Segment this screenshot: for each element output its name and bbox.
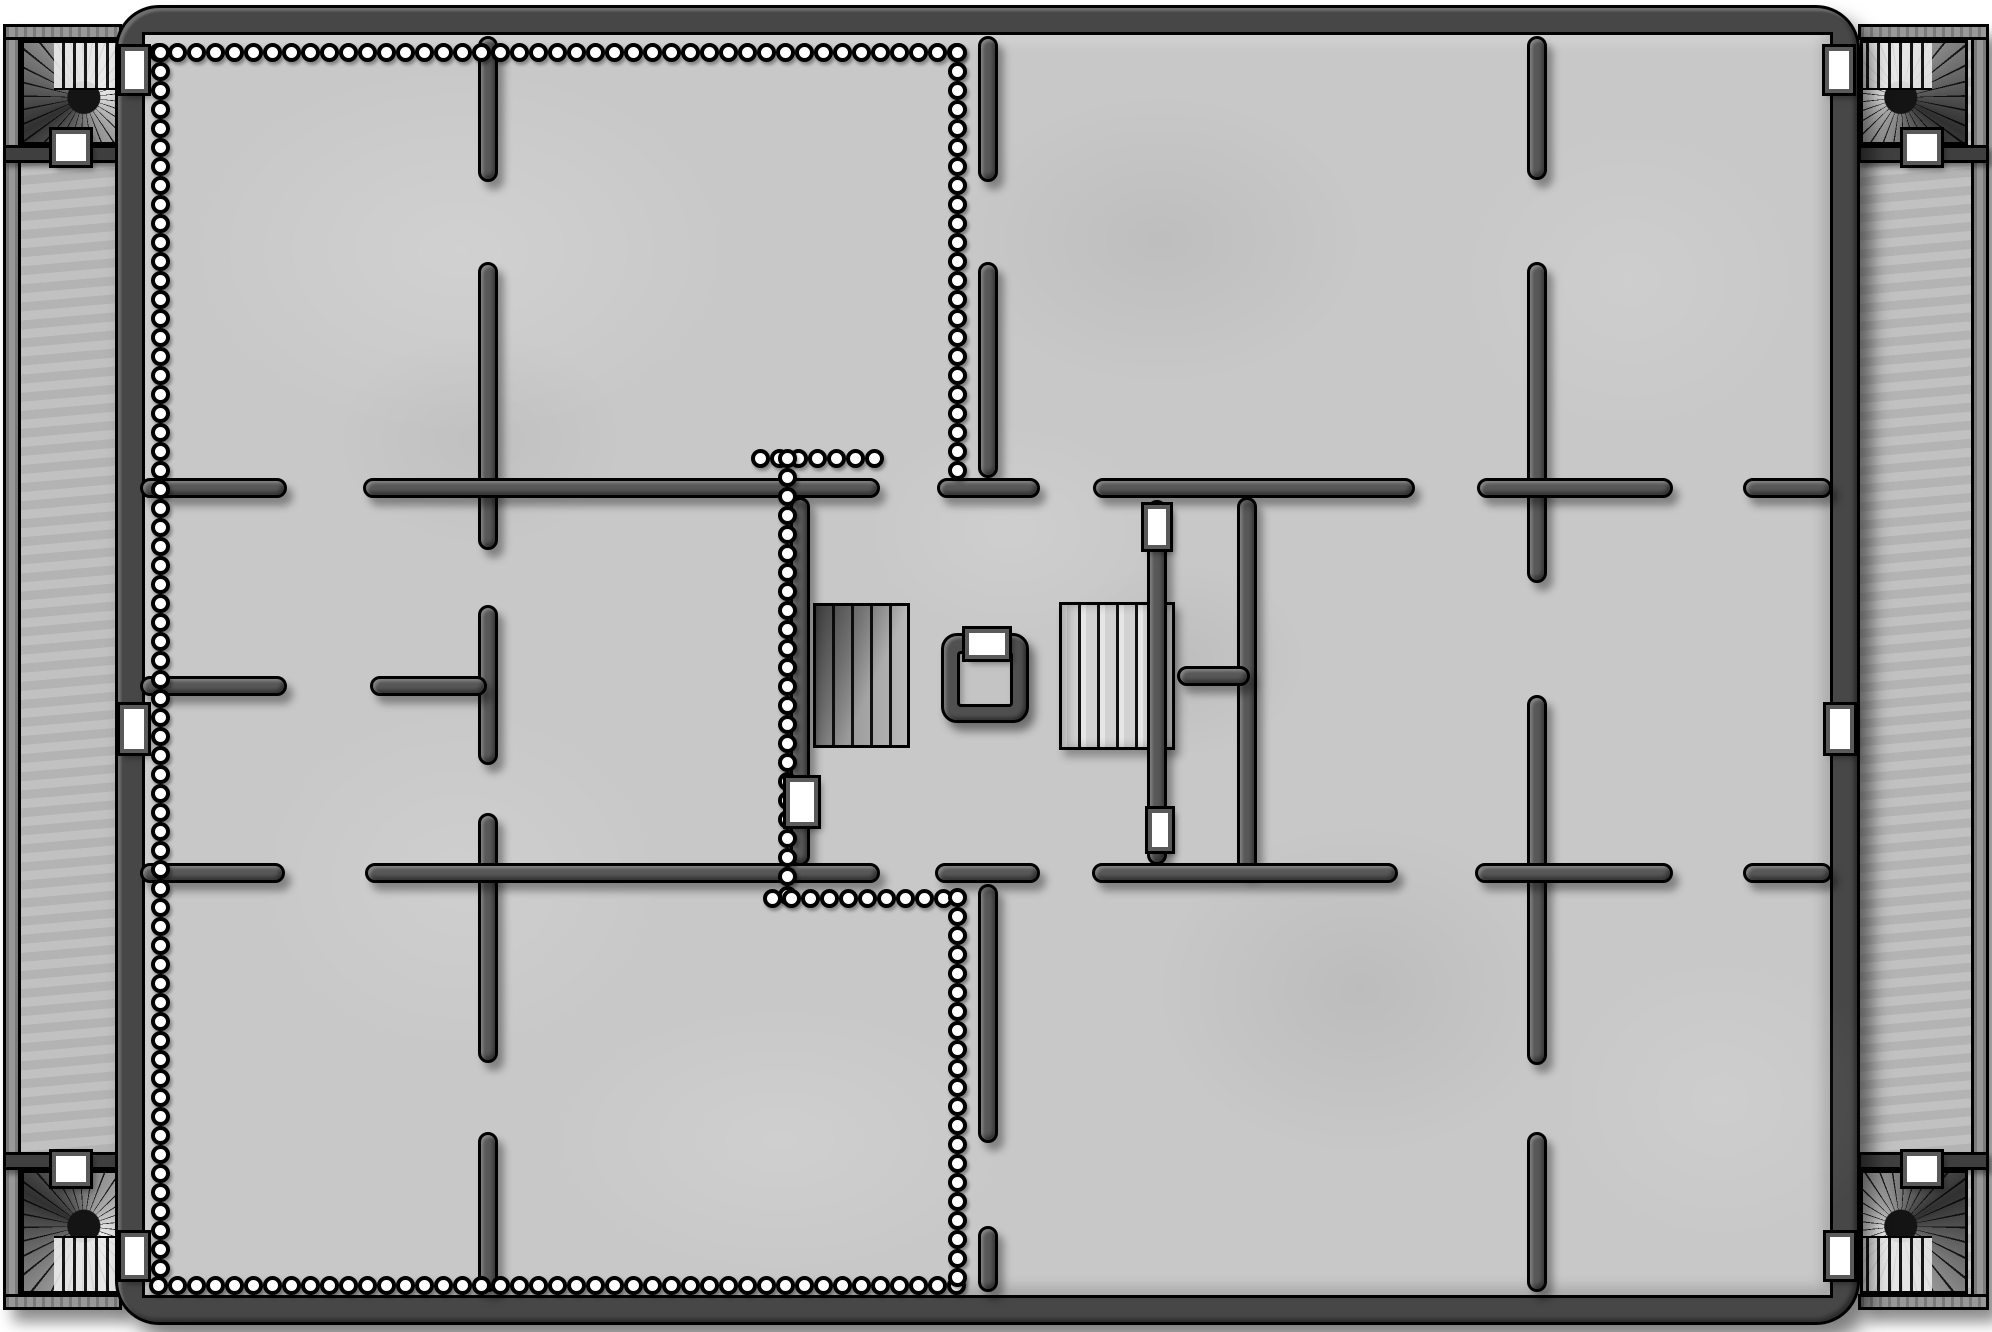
pillar-dot bbox=[151, 1031, 170, 1050]
door-right-wall bbox=[1826, 705, 1854, 753]
pillar-dot bbox=[795, 1276, 814, 1295]
pillar-dot bbox=[814, 43, 833, 62]
pillar-dot bbox=[187, 1276, 206, 1295]
pillar-dot bbox=[151, 157, 170, 176]
pillar-dot bbox=[948, 271, 967, 290]
pillar-dot bbox=[778, 753, 797, 772]
pillar-dot bbox=[948, 1249, 967, 1268]
pillar-dot bbox=[151, 81, 170, 100]
pillar-dot bbox=[778, 525, 797, 544]
pillar-dot bbox=[782, 889, 801, 908]
pillar-dot bbox=[151, 670, 170, 689]
pillar-dot bbox=[377, 1276, 396, 1295]
pillar-dot bbox=[948, 62, 967, 81]
wall-segment-vertical bbox=[1527, 262, 1547, 583]
pillar-dot bbox=[151, 936, 170, 955]
pillar-dot bbox=[151, 499, 170, 518]
right-wing-corridor bbox=[1858, 24, 1989, 1310]
pillar-dot bbox=[719, 43, 738, 62]
pillar-dot bbox=[151, 1164, 170, 1183]
pillar-dot bbox=[948, 1097, 967, 1116]
pillar-dot bbox=[151, 727, 170, 746]
pillar-dot bbox=[151, 822, 170, 841]
pillar-dot bbox=[948, 1173, 967, 1192]
right-wing-top-wall bbox=[1858, 24, 1989, 40]
pillar-dot bbox=[948, 347, 967, 366]
right-wing-outer-wall bbox=[1971, 24, 1989, 1310]
wall-segment-horizontal bbox=[935, 863, 1040, 883]
pillar-dot bbox=[896, 889, 915, 908]
wall-segment-horizontal bbox=[1093, 478, 1415, 498]
pillar-dot bbox=[151, 575, 170, 594]
pillar-dot bbox=[778, 677, 797, 696]
pillar-dot bbox=[778, 696, 797, 715]
spiral-steps bbox=[54, 43, 119, 90]
pillar-dot bbox=[877, 889, 896, 908]
pillar-dot bbox=[909, 43, 928, 62]
pillar-dot bbox=[151, 1012, 170, 1031]
door-bottom-left-stair-east bbox=[121, 1233, 148, 1279]
pillar-dot bbox=[151, 461, 170, 480]
pillar-dot bbox=[948, 1230, 967, 1249]
door-left-wall bbox=[120, 705, 148, 753]
pillar-dot bbox=[377, 43, 396, 62]
pillar-dot bbox=[168, 43, 187, 62]
pillar-dot bbox=[151, 993, 170, 1012]
pillar-dot bbox=[586, 43, 605, 62]
pillar-dot bbox=[801, 889, 820, 908]
pillar-dot bbox=[151, 879, 170, 898]
pillar-dot bbox=[778, 506, 797, 525]
pillar-dot bbox=[434, 1276, 453, 1295]
pillar-dot bbox=[858, 889, 877, 908]
wall-segment-horizontal bbox=[1477, 478, 1673, 498]
pillar-dot bbox=[833, 1276, 852, 1295]
pillar-dot bbox=[948, 157, 967, 176]
pillar-dot bbox=[948, 1040, 967, 1059]
pillar-dot bbox=[151, 917, 170, 936]
pillar-dot bbox=[151, 765, 170, 784]
left-wing-bottom-wall bbox=[3, 1294, 122, 1310]
pillar-dot bbox=[151, 119, 170, 138]
door-colonnade bbox=[786, 778, 818, 826]
wall-segment-vertical bbox=[978, 884, 998, 1143]
pillar-dot bbox=[948, 1211, 967, 1230]
pillar-dot bbox=[778, 848, 797, 867]
pillar-dot bbox=[643, 1276, 662, 1295]
pillar-dot bbox=[778, 715, 797, 734]
pillar-dot bbox=[681, 1276, 700, 1295]
pillar-dot bbox=[151, 404, 170, 423]
pillar-dot bbox=[151, 309, 170, 328]
pillar-dot bbox=[890, 1276, 909, 1295]
pillar-dot bbox=[778, 734, 797, 753]
pillar-dot bbox=[320, 1276, 339, 1295]
pillar-dot bbox=[662, 1276, 681, 1295]
pillar-dot bbox=[339, 1276, 358, 1295]
pillar-dot bbox=[948, 1135, 967, 1154]
pillar-dot bbox=[778, 487, 797, 506]
pillar-dot bbox=[948, 1002, 967, 1021]
wall-segment-horizontal bbox=[1475, 863, 1673, 883]
pillar-dot bbox=[151, 1126, 170, 1145]
wall-segment-horizontal bbox=[1743, 863, 1832, 883]
pillar-dot bbox=[358, 1276, 377, 1295]
pillar-dot bbox=[827, 449, 846, 468]
pillar-dot bbox=[301, 1276, 320, 1295]
pillar-dot bbox=[151, 594, 170, 613]
pillar-dot bbox=[151, 784, 170, 803]
pillar-dot bbox=[151, 233, 170, 252]
pillar-dot bbox=[491, 1276, 510, 1295]
pillar-dot bbox=[778, 468, 797, 487]
pillar-dot bbox=[434, 43, 453, 62]
pillar-dot bbox=[757, 1276, 776, 1295]
pillar-dot bbox=[948, 214, 967, 233]
pillar-dot bbox=[948, 1116, 967, 1135]
door-below-right-stairs bbox=[1148, 809, 1172, 851]
pillar-dot bbox=[948, 290, 967, 309]
spiral-staircase-bottom-right bbox=[1860, 1170, 1968, 1294]
spiral-steps bbox=[54, 1236, 119, 1291]
pillar-dot bbox=[396, 1276, 415, 1295]
pillar-dot bbox=[151, 746, 170, 765]
pillar-dot bbox=[948, 1192, 967, 1211]
pillar-dot bbox=[948, 328, 967, 347]
pillar-dot bbox=[453, 43, 472, 62]
pillar-dot bbox=[151, 138, 170, 157]
pillar-dot bbox=[948, 404, 967, 423]
pillar-dot bbox=[151, 974, 170, 993]
pillar-dot bbox=[151, 366, 170, 385]
pillar-dot bbox=[948, 119, 967, 138]
pillar-dot bbox=[915, 889, 934, 908]
pillar-dot bbox=[871, 43, 890, 62]
pillar-dot bbox=[846, 449, 865, 468]
pillar-dot bbox=[948, 1021, 967, 1040]
pillar-dot bbox=[415, 1276, 434, 1295]
pillar-dot bbox=[151, 195, 170, 214]
wall-segment-vertical bbox=[978, 262, 998, 478]
pillar-dot bbox=[757, 43, 776, 62]
pillar-dot bbox=[301, 43, 320, 62]
pillar-dot bbox=[567, 1276, 586, 1295]
wall-segment-horizontal bbox=[370, 676, 487, 696]
pillar-dot bbox=[415, 43, 434, 62]
pillar-dot bbox=[948, 983, 967, 1002]
pillar-dot bbox=[151, 385, 170, 404]
door-top-left-stair-east bbox=[121, 47, 148, 93]
pillar-dot bbox=[151, 1107, 170, 1126]
spiral-steps bbox=[1863, 1236, 1932, 1291]
pillar-dot bbox=[948, 945, 967, 964]
pillar-dot bbox=[605, 43, 624, 62]
pillar-dot bbox=[320, 43, 339, 62]
pillar-dot bbox=[948, 100, 967, 119]
pillar-dot bbox=[948, 138, 967, 157]
central-well-floor bbox=[957, 651, 1013, 707]
pillar-dot bbox=[808, 449, 827, 468]
door-above-right-stairs bbox=[1144, 505, 1170, 549]
pillar-dot bbox=[662, 43, 681, 62]
pillar-dot bbox=[778, 867, 797, 886]
left-wing-outer-wall bbox=[3, 24, 21, 1310]
pillar-dot bbox=[151, 518, 170, 537]
pillar-dot bbox=[839, 889, 858, 908]
pillar-dot bbox=[151, 1069, 170, 1088]
door-well bbox=[965, 629, 1009, 659]
pillar-dot bbox=[339, 43, 358, 62]
pillar-dot bbox=[151, 176, 170, 195]
pillar-dot bbox=[151, 556, 170, 575]
pillar-dot bbox=[151, 708, 170, 727]
pillar-dot bbox=[738, 1276, 757, 1295]
pillar-dot bbox=[282, 43, 301, 62]
pillar-dot bbox=[396, 43, 415, 62]
pillar-dot bbox=[151, 651, 170, 670]
wall-segment-vertical bbox=[978, 1226, 998, 1292]
pillar-dot bbox=[763, 889, 782, 908]
wall-segment-horizontal bbox=[1743, 478, 1832, 498]
pillar-dot bbox=[151, 1183, 170, 1202]
wall-segment-vertical bbox=[478, 813, 498, 1063]
pillar-dot bbox=[548, 1276, 567, 1295]
pillar-dot bbox=[948, 195, 967, 214]
pillar-dot bbox=[948, 1078, 967, 1097]
pillar-dot bbox=[151, 271, 170, 290]
wall-segment-vertical bbox=[478, 262, 498, 550]
pillar-dot bbox=[871, 1276, 890, 1295]
pillar-dot bbox=[778, 620, 797, 639]
pillar-dot bbox=[151, 898, 170, 917]
pillar-dot bbox=[928, 43, 947, 62]
pillar-dot bbox=[263, 1276, 282, 1295]
pillar-dot bbox=[244, 43, 263, 62]
pillar-dot bbox=[225, 1276, 244, 1295]
pillar-dot bbox=[151, 100, 170, 119]
wall-segment-vertical bbox=[978, 36, 998, 182]
pillar-dot bbox=[151, 1202, 170, 1221]
dungeon-battle-map bbox=[0, 0, 1992, 1332]
pillar-dot bbox=[776, 1276, 795, 1295]
door-bottom-right-stair-north bbox=[1903, 1152, 1941, 1186]
pillar-dot bbox=[948, 385, 967, 404]
pillar-dot bbox=[151, 62, 170, 81]
spiral-staircase-bottom-left bbox=[21, 1170, 122, 1294]
wall-segment-horizontal bbox=[1092, 863, 1398, 883]
pillar-dot bbox=[948, 81, 967, 100]
door-top-right-stair-west bbox=[1825, 47, 1853, 93]
pillar-dot bbox=[472, 1276, 491, 1295]
pillar-dot bbox=[149, 1276, 168, 1295]
pillar-dot bbox=[948, 926, 967, 945]
pillar-dot bbox=[151, 860, 170, 879]
pillar-dot bbox=[643, 43, 662, 62]
pillar-dot bbox=[948, 309, 967, 328]
left-wing-top-wall bbox=[3, 24, 122, 40]
pillar-dot bbox=[852, 43, 871, 62]
pillar-dot bbox=[795, 43, 814, 62]
pillar-dot bbox=[852, 1276, 871, 1295]
pillar-dot bbox=[751, 449, 770, 468]
pillar-dot bbox=[151, 43, 170, 62]
pillar-dot bbox=[738, 43, 757, 62]
pillar-dot bbox=[151, 632, 170, 651]
pillar-dot bbox=[778, 829, 797, 848]
pillar-dot bbox=[151, 1221, 170, 1240]
pillar-dot bbox=[510, 43, 529, 62]
pillar-dot bbox=[151, 841, 170, 860]
pillar-dot bbox=[567, 43, 586, 62]
pillar-dot bbox=[948, 176, 967, 195]
wall-segment-horizontal bbox=[363, 478, 880, 498]
wall-segment-horizontal bbox=[1177, 666, 1250, 686]
wall-segment-vertical bbox=[478, 1132, 498, 1292]
right-wing-bottom-wall bbox=[1858, 1294, 1989, 1310]
pillar-dot bbox=[151, 1088, 170, 1107]
pillar-dot bbox=[529, 1276, 548, 1295]
pillar-dot bbox=[453, 1276, 472, 1295]
pillar-dot bbox=[151, 442, 170, 461]
pillar-dot bbox=[151, 252, 170, 271]
pillar-dot bbox=[909, 1276, 928, 1295]
pillar-dot bbox=[510, 1276, 529, 1295]
pillar-dot bbox=[890, 43, 909, 62]
pillar-dot bbox=[187, 43, 206, 62]
pillar-dot bbox=[206, 43, 225, 62]
wall-segment-vertical bbox=[1527, 36, 1547, 180]
pillar-dot bbox=[814, 1276, 833, 1295]
pillar-dot bbox=[151, 537, 170, 556]
pillar-dot bbox=[778, 563, 797, 582]
wall-segment-vertical bbox=[1527, 1132, 1547, 1292]
pillar-dot bbox=[778, 449, 797, 468]
pillar-dot bbox=[865, 449, 884, 468]
door-bottom-left-stair-north bbox=[52, 1152, 90, 1186]
pillar-dot bbox=[151, 955, 170, 974]
pillar-dot bbox=[948, 888, 967, 907]
wall-segment-horizontal bbox=[937, 478, 1040, 498]
pillar-dot bbox=[151, 803, 170, 822]
pillar-dot bbox=[776, 43, 795, 62]
pillar-dot bbox=[833, 43, 852, 62]
pillar-dot bbox=[948, 366, 967, 385]
pillar-dot bbox=[948, 1059, 967, 1078]
pillar-dot bbox=[151, 290, 170, 309]
stairs-central-left bbox=[813, 603, 910, 748]
pillar-dot bbox=[529, 43, 548, 62]
pillar-dot bbox=[168, 1276, 187, 1295]
pillar-dot bbox=[948, 964, 967, 983]
spiral-steps bbox=[1863, 43, 1932, 90]
pillar-dot bbox=[928, 1276, 947, 1295]
pillar-dot bbox=[225, 43, 244, 62]
pillar-dot bbox=[948, 233, 967, 252]
wall-segment-horizontal bbox=[365, 863, 880, 883]
pillar-dot bbox=[151, 1050, 170, 1069]
pillar-dot bbox=[624, 1276, 643, 1295]
pillar-dot bbox=[778, 658, 797, 677]
pillar-dot bbox=[358, 43, 377, 62]
pillar-dot bbox=[151, 423, 170, 442]
pillar-dot bbox=[948, 442, 967, 461]
pillar-dot bbox=[719, 1276, 738, 1295]
door-top-left-stair-south bbox=[52, 130, 90, 165]
pillar-dot bbox=[586, 1276, 605, 1295]
pillar-dot bbox=[700, 43, 719, 62]
pillar-dot bbox=[472, 43, 491, 62]
pillar-dot bbox=[151, 480, 170, 499]
pillar-dot bbox=[263, 43, 282, 62]
pillar-dot bbox=[151, 214, 170, 233]
pillar-dot bbox=[778, 639, 797, 658]
pillar-dot bbox=[948, 252, 967, 271]
pillar-dot bbox=[681, 43, 700, 62]
pillar-dot bbox=[151, 1240, 170, 1259]
pillar-dot bbox=[948, 1268, 967, 1287]
pillar-dot bbox=[151, 689, 170, 708]
pillar-dot bbox=[548, 43, 567, 62]
pillar-dot bbox=[948, 423, 967, 442]
pillar-dot bbox=[948, 461, 967, 480]
door-bottom-right-stair-west bbox=[1826, 1233, 1854, 1279]
door-top-right-stair-south bbox=[1903, 130, 1941, 165]
pillar-dot bbox=[700, 1276, 719, 1295]
pillar-dot bbox=[605, 1276, 624, 1295]
pillar-dot bbox=[151, 328, 170, 347]
pillar-dot bbox=[948, 43, 967, 62]
pillar-dot bbox=[778, 544, 797, 563]
pillar-dot bbox=[948, 1154, 967, 1173]
pillar-dot bbox=[778, 601, 797, 620]
pillar-dot bbox=[282, 1276, 301, 1295]
pillar-dot bbox=[778, 582, 797, 601]
pillar-dot bbox=[206, 1276, 225, 1295]
pillar-dot bbox=[244, 1276, 263, 1295]
pillar-dot bbox=[151, 1145, 170, 1164]
pillar-dot bbox=[151, 347, 170, 366]
pillar-dot bbox=[948, 907, 967, 926]
pillar-dot bbox=[491, 43, 510, 62]
pillar-dot bbox=[820, 889, 839, 908]
pillar-dot bbox=[151, 1259, 170, 1278]
pillar-dot bbox=[624, 43, 643, 62]
pillar-dot bbox=[151, 613, 170, 632]
